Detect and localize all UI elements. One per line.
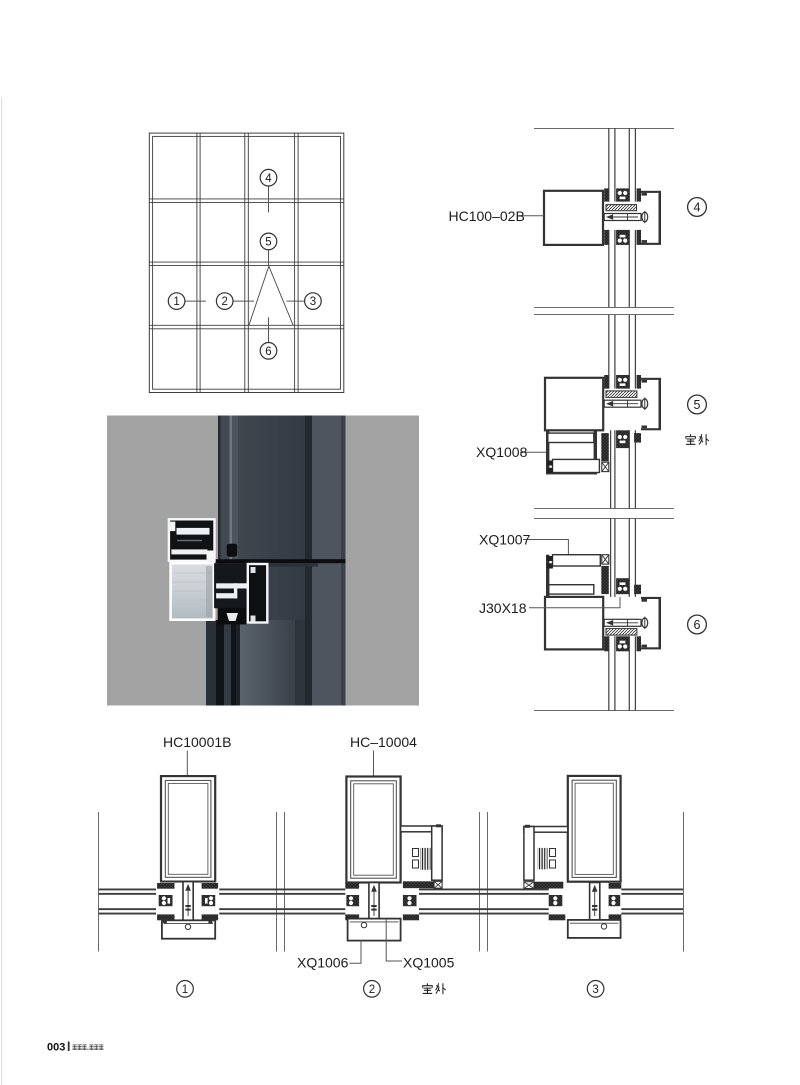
svg-text:2: 2 xyxy=(221,296,227,308)
svg-text:5: 5 xyxy=(694,398,701,412)
svg-text:6: 6 xyxy=(694,618,701,632)
svg-text:1: 1 xyxy=(173,296,179,308)
svg-text:XQ1007: XQ1007 xyxy=(479,532,531,548)
svg-text:003: 003 xyxy=(47,1041,65,1053)
svg-text:4: 4 xyxy=(265,173,272,185)
svg-text:5: 5 xyxy=(265,237,271,249)
svg-text:1: 1 xyxy=(182,984,188,996)
svg-text:XQ1005: XQ1005 xyxy=(403,955,455,971)
svg-text:J30X18: J30X18 xyxy=(479,600,527,616)
svg-text:XQ1006: XQ1006 xyxy=(297,955,349,971)
svg-text:XQ1008: XQ1008 xyxy=(476,444,528,460)
svg-text:4: 4 xyxy=(694,201,701,215)
svg-text:6: 6 xyxy=(265,346,271,358)
svg-text:3: 3 xyxy=(592,984,598,996)
svg-text:2: 2 xyxy=(369,984,375,996)
svg-text:HC–10004: HC–10004 xyxy=(350,734,417,750)
svg-text:HC10001B: HC10001B xyxy=(163,734,232,750)
svg-text:HC100–02B: HC100–02B xyxy=(449,208,525,224)
svg-text:3: 3 xyxy=(310,296,316,308)
